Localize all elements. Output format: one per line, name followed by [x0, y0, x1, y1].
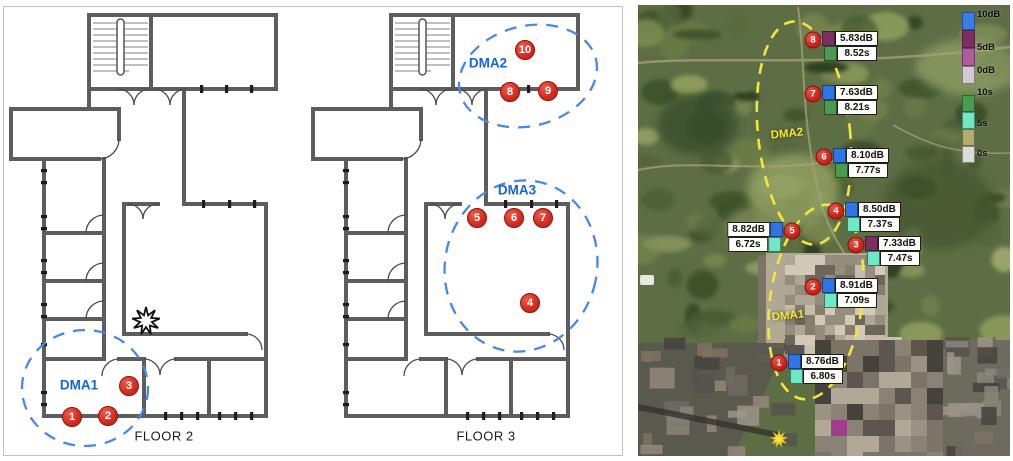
measurement-8: 5.83dB 8.52s	[822, 31, 878, 61]
legend-db-swatch-high	[962, 30, 975, 48]
db-swatch	[822, 278, 835, 293]
db-swatch	[788, 354, 801, 369]
time-swatch	[768, 237, 781, 252]
sensor-marker-6: 6	[504, 208, 524, 228]
time-value: 7.37s	[860, 217, 900, 232]
measurement-7: 7.63dB 8.21s	[822, 85, 878, 115]
time-value: 8.52s	[837, 46, 877, 61]
star-symbol-floor2	[132, 307, 160, 334]
time-value: 8.21s	[837, 100, 877, 115]
measurement-2: 8.91dB 7.09s	[822, 278, 878, 308]
photo-marker-5: 5	[784, 223, 801, 240]
sensor-marker-8: 8	[500, 82, 520, 102]
legend-label-10db: 10dB	[977, 9, 1000, 20]
db-value: 8.82dB	[727, 222, 770, 237]
dma2-label-floor3: DMA2	[469, 56, 507, 71]
db-value: 7.33dB	[878, 236, 921, 251]
time-value: 6.80s	[803, 369, 843, 384]
time-swatch	[824, 293, 837, 308]
dma1-label-floor2: DMA1	[60, 378, 98, 393]
db-swatch	[845, 202, 858, 217]
time-swatch	[790, 369, 803, 384]
time-swatch	[867, 251, 880, 266]
legend-time-swatch-10	[962, 95, 975, 112]
floor2-title: FLOOR 2	[134, 429, 193, 444]
measurement-5: 8.82dB 6.72s	[727, 222, 783, 252]
time-value: 7.09s	[837, 293, 877, 308]
time-value: 6.72s	[728, 237, 768, 252]
photo-zone-overlay	[638, 5, 1010, 456]
measurement-3: 7.33dB 7.47s	[865, 236, 921, 266]
db-value: 5.83dB	[835, 31, 878, 46]
measurement-4: 8.50dB 7.37s	[845, 202, 901, 232]
db-value: 8.76dB	[801, 354, 844, 369]
legend-time-swatch-low	[962, 146, 975, 163]
sensor-marker-7: 7	[533, 208, 553, 228]
time-swatch	[835, 163, 848, 178]
time-value: 7.77s	[848, 163, 888, 178]
photo-marker-1: 1	[771, 355, 788, 372]
legend-db-swatch-low	[962, 66, 975, 84]
legend-label-5db: 5dB	[977, 42, 995, 53]
floor3-title: FLOOR 3	[456, 429, 515, 444]
photo-marker-7: 7	[805, 86, 822, 103]
legend-label-5s: 5s	[977, 118, 988, 129]
sensor-marker-2: 2	[98, 406, 118, 426]
db-swatch	[822, 85, 835, 100]
sensor-marker-4: 4	[520, 293, 540, 313]
legend-label-10s: 10s	[977, 87, 993, 98]
time-swatch	[847, 217, 860, 232]
measurement-1: 8.76dB 6.80s	[788, 354, 844, 384]
sensor-marker-5: 5	[467, 208, 487, 228]
db-swatch	[822, 31, 835, 46]
photo-marker-6: 6	[816, 149, 833, 166]
sensor-marker-10: 10	[515, 40, 535, 60]
legend-label-0s: 0s	[977, 148, 988, 159]
dma3-label-floor3: DMA3	[498, 183, 536, 198]
time-value: 7.47s	[880, 251, 920, 266]
db-swatch	[865, 236, 878, 251]
floor-plans-panel: FLOOR 2 FLOOR 3 DMA1 DMA2 DMA3 1 2 3 4 5…	[3, 6, 623, 456]
legend-db-swatch-10	[962, 12, 975, 30]
measurement-6: 8.10dB 7.77s	[833, 148, 889, 178]
db-swatch	[770, 222, 783, 237]
time-swatch	[824, 100, 837, 115]
photo-marker-4: 4	[828, 203, 845, 220]
photo-marker-3: 3	[848, 237, 865, 254]
time-swatch	[824, 46, 837, 61]
legend-label-0db: 0dB	[977, 65, 995, 76]
aerial-photo-panel: DMA2 DMA1 8 5.83dB 8.52s 7 7.63dB 8.21s …	[638, 5, 1010, 456]
db-value: 8.10dB	[846, 148, 889, 163]
photo-marker-2: 2	[805, 279, 822, 296]
photo-marker-8: 8	[805, 32, 822, 49]
legend-db-swatch-mid	[962, 48, 975, 66]
db-value: 8.91dB	[835, 278, 878, 293]
db-swatch	[833, 148, 846, 163]
legend-time-swatch-high	[962, 112, 975, 129]
dma2-zone-ellipse-floor3	[448, 11, 608, 142]
sensor-marker-1: 1	[62, 407, 82, 427]
db-value: 7.63dB	[835, 85, 878, 100]
sensor-marker-3: 3	[119, 376, 139, 396]
db-value: 8.50dB	[858, 202, 901, 217]
figure-canvas: FLOOR 2 FLOOR 3 DMA1 DMA2 DMA3 1 2 3 4 5…	[0, 0, 1013, 461]
legend-time-swatch-mid	[962, 129, 975, 146]
sensor-marker-9: 9	[538, 81, 558, 101]
